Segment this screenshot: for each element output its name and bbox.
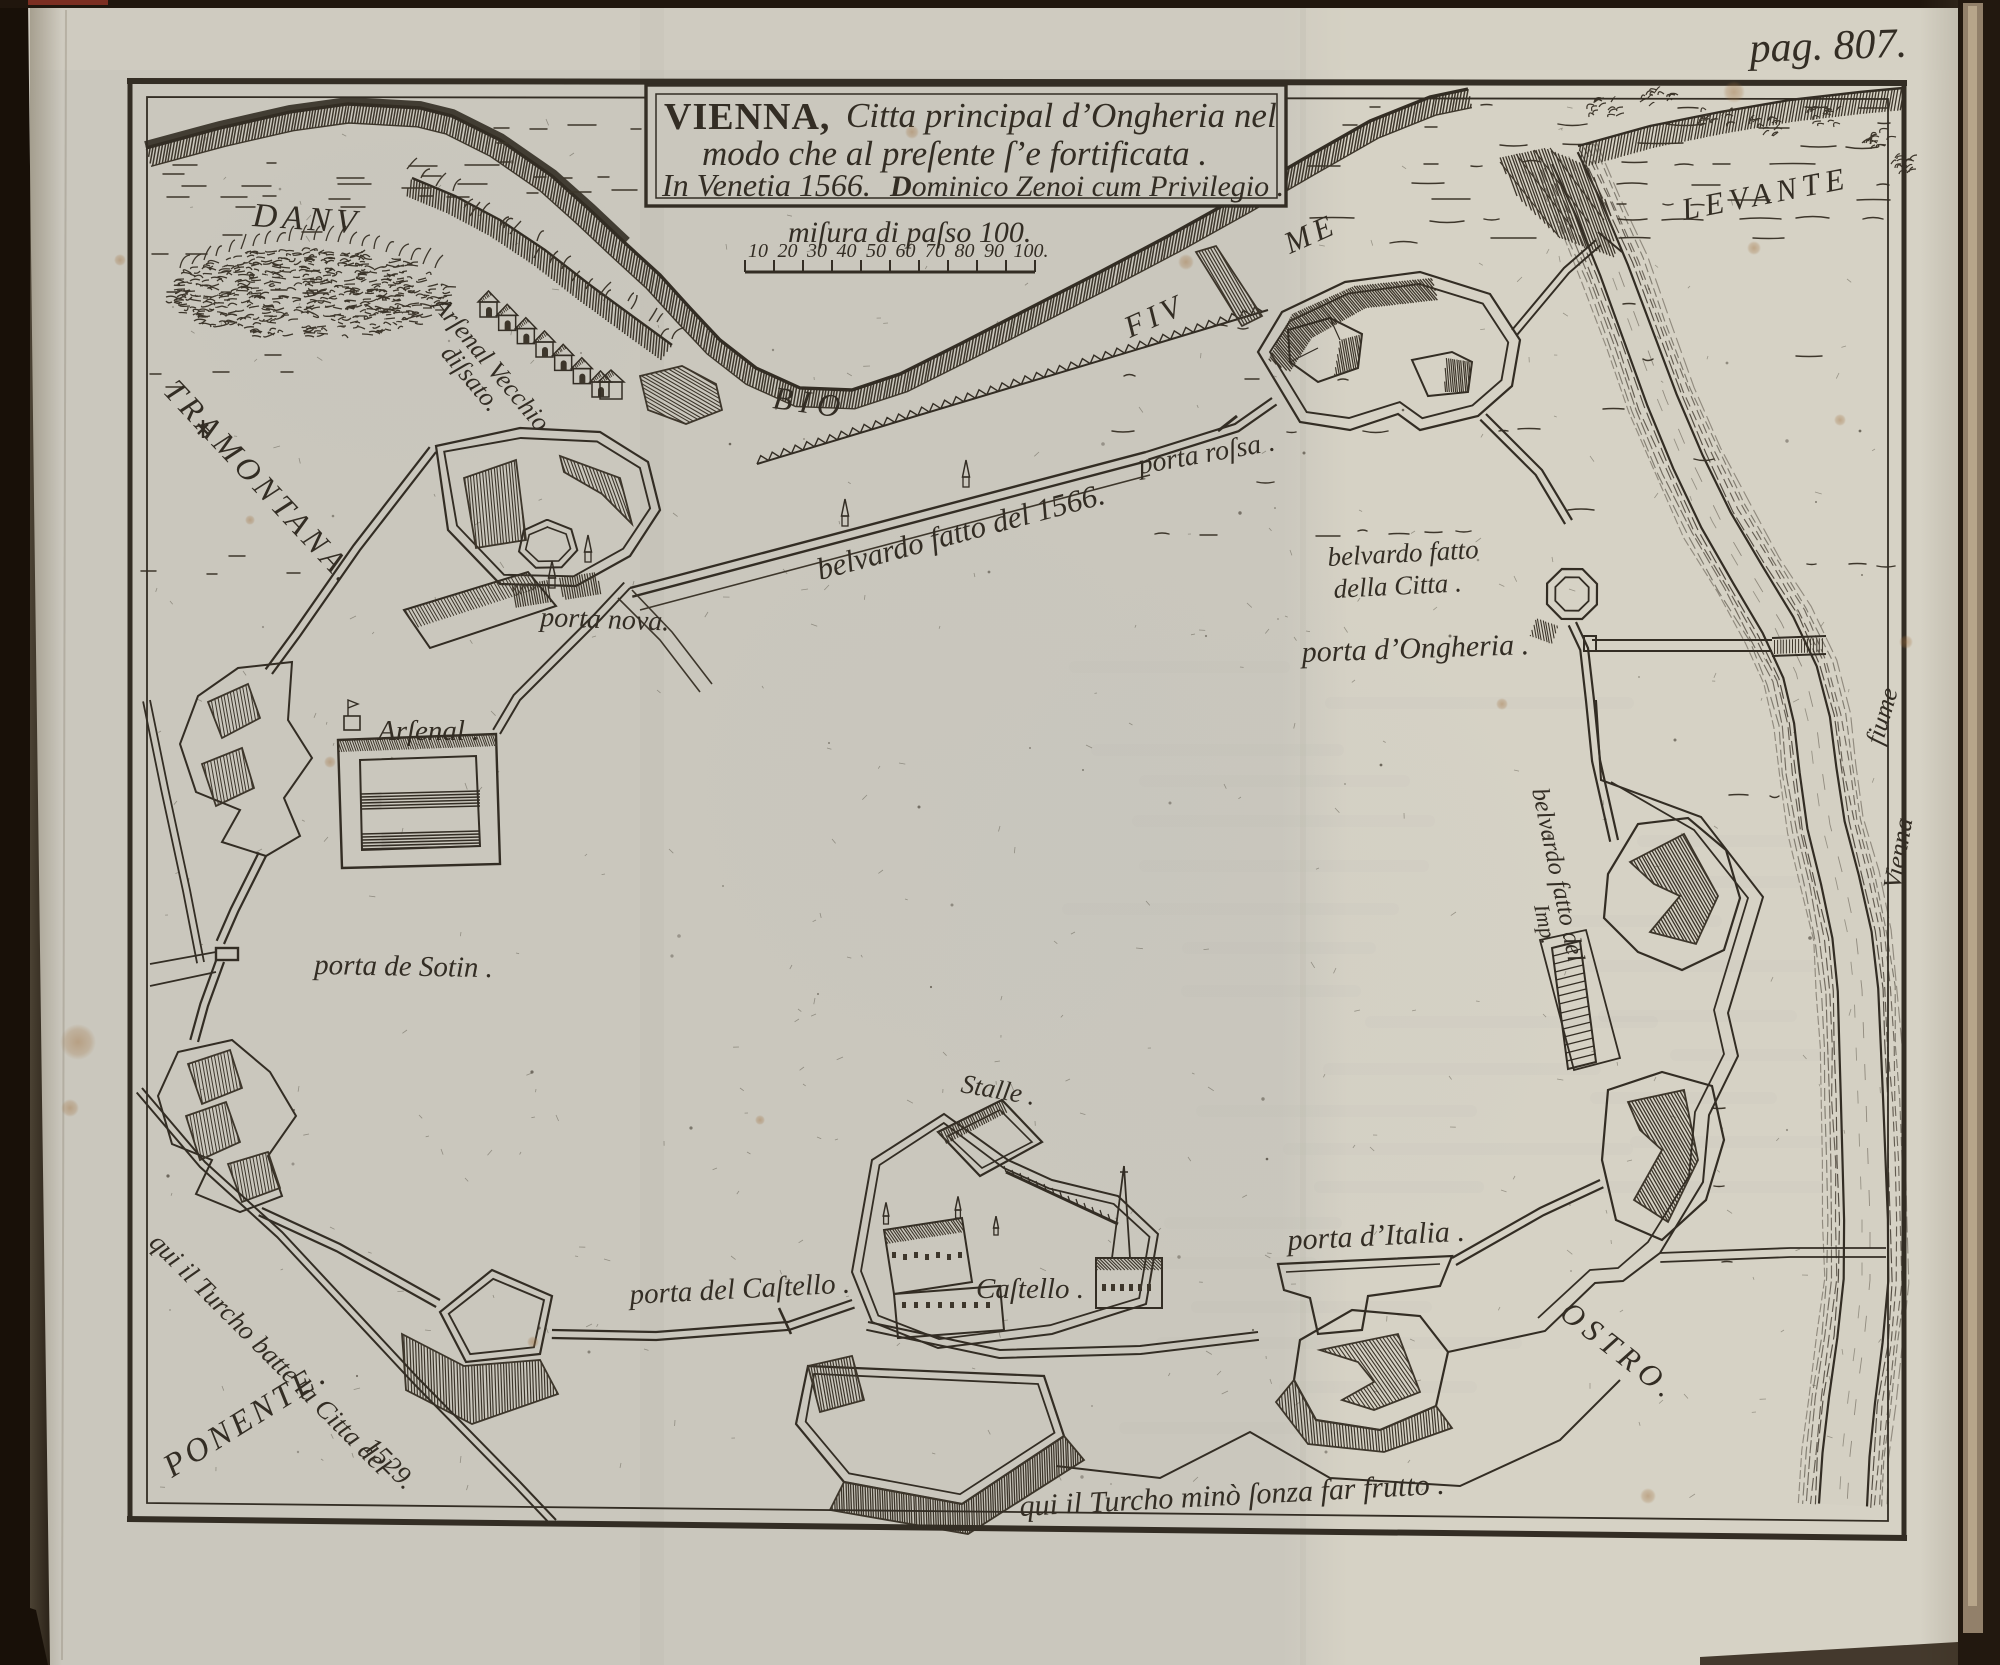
svg-text:100.: 100. <box>1014 240 1049 262</box>
svg-text:Arſenal .: Arſenal . <box>376 715 480 747</box>
svg-text:70: 70 <box>925 240 945 262</box>
svg-text:Dominico Zenoi cum Privilegio: Dominico Zenoi cum Privilegio . <box>889 170 1284 203</box>
svg-text:50: 50 <box>866 240 886 262</box>
svg-text:VIENNA,: VIENNA, <box>664 96 830 138</box>
svg-text:10: 10 <box>748 240 768 262</box>
svg-text:Caſtello .: Caſtello . <box>976 1273 1084 1305</box>
svg-text:80: 80 <box>955 240 975 262</box>
svg-text:60: 60 <box>896 240 916 262</box>
svg-text:In Venetia 1566.: In Venetia 1566. <box>661 167 871 203</box>
svg-text:20: 20 <box>778 240 798 262</box>
svg-text:porta de Sotin .: porta de Sotin . <box>312 949 493 984</box>
svg-text:DANV: DANV <box>250 197 362 242</box>
svg-text:40: 40 <box>837 240 857 262</box>
svg-text:pag. 807.: pag. 807. <box>1746 21 1908 73</box>
svg-text:90: 90 <box>984 240 1004 262</box>
svg-text:porta nova.: porta nova. <box>538 602 670 638</box>
